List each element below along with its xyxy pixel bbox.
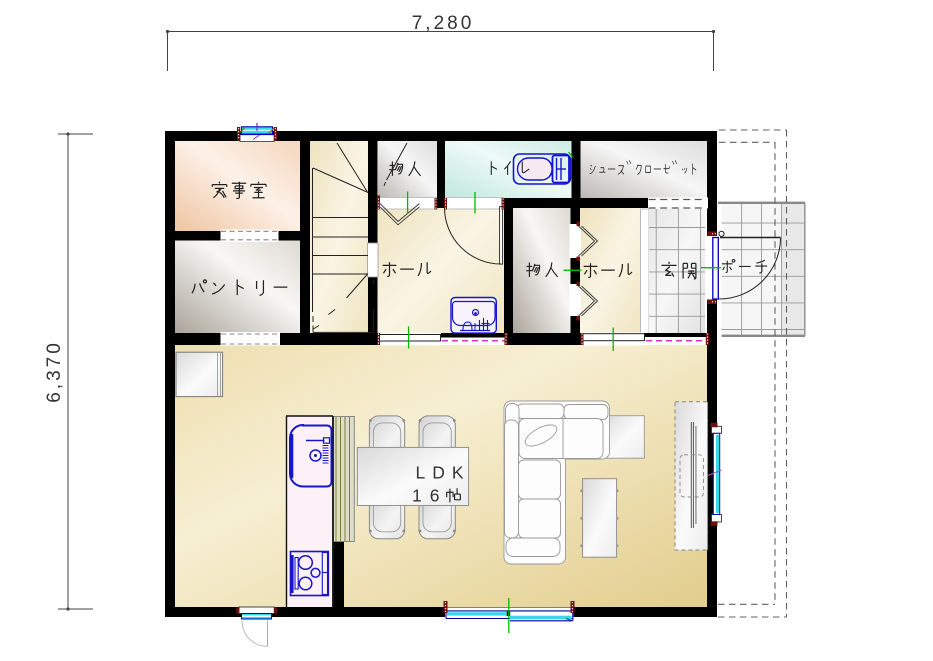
svg-text:16: 16 xyxy=(412,486,447,506)
svg-text:6,370: 6,370 xyxy=(44,340,65,403)
svg-text:LDK: LDK xyxy=(416,463,471,483)
svg-text:7,280: 7,280 xyxy=(412,13,475,34)
